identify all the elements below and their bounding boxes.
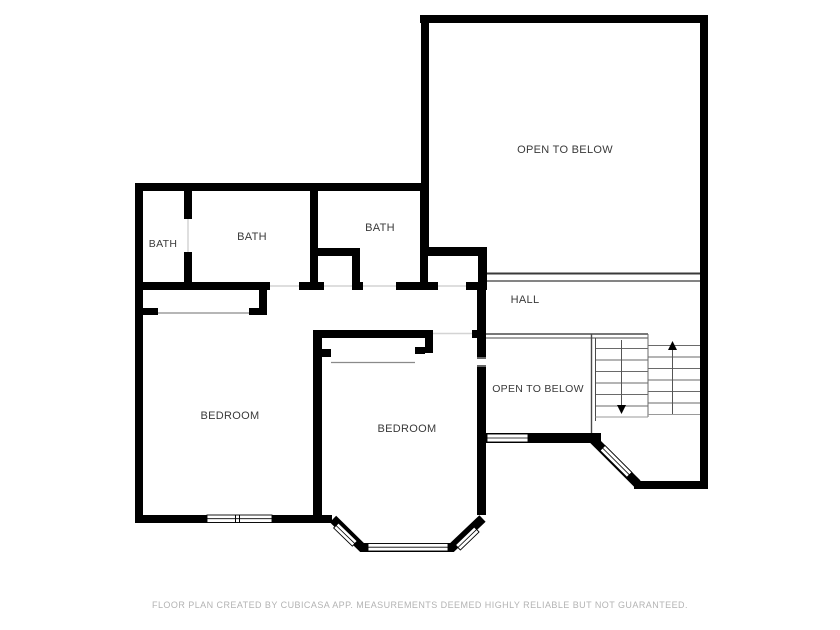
room-label-bath-hall: BATH <box>365 222 395 234</box>
window-line <box>603 448 630 475</box>
interior-walls <box>135 191 641 516</box>
floor-plan-drawing <box>0 0 840 630</box>
wall-closet-left-foot <box>249 308 259 315</box>
wall-closet-left-stub <box>135 308 158 315</box>
wall-bedroom-right-top-2 <box>472 330 482 338</box>
floor-plan-canvas: BATH BATH BATH HALL OPEN TO BELOW OPEN T… <box>0 0 840 630</box>
door-thresholds <box>188 219 472 334</box>
window-bedroom-right-east <box>477 358 486 366</box>
window-diagonal-lower-right <box>600 446 632 478</box>
wall-closet-right-stub <box>322 349 331 357</box>
wall-bedroom-divider <box>313 330 322 516</box>
wall-bedroom-right-east-upper <box>477 288 486 357</box>
wall-top-left-section <box>135 183 429 191</box>
room-label-open-to-below-small: OPEN TO BELOW <box>492 383 584 395</box>
footer-disclaimer: FLOOR PLAN CREATED BY CUBICASA APP. MEAS… <box>0 600 840 610</box>
wall-bath2-bath3-divider <box>310 191 318 282</box>
room-label-bedroom-right: BEDROOM <box>378 423 437 435</box>
stair-flight-up <box>648 346 700 415</box>
stairs <box>596 334 701 417</box>
wall-bath-divider-lower <box>184 252 192 283</box>
wall-nook-top <box>421 247 487 256</box>
room-label-hall: HALL <box>511 294 540 306</box>
wall-hall-top-3 <box>352 282 363 290</box>
wall-bath-divider-upper <box>184 191 192 219</box>
wall-bedroom-right-top <box>313 330 433 338</box>
window-bedroom-left <box>207 515 272 523</box>
wall-outer-left <box>135 183 143 523</box>
stair-flight-down <box>596 334 649 417</box>
wall-bath3-nook-side <box>352 256 360 282</box>
bay-window <box>333 519 483 552</box>
wall-hall-top-4 <box>396 282 438 290</box>
room-label-bath-main: BATH <box>237 231 267 243</box>
wall-hall-top-2 <box>299 282 324 290</box>
room-label-open-to-below-large: OPEN TO BELOW <box>517 144 613 156</box>
bay-window-bottom-pane <box>368 544 448 552</box>
room-label-bath-small: BATH <box>149 238 177 250</box>
window-open-below-small <box>487 434 528 442</box>
wall-bath3-nook-top <box>318 248 360 256</box>
wall-outer-right <box>700 15 708 489</box>
wall-closet-left-side <box>259 282 267 315</box>
wall-hall-top-1 <box>135 282 270 290</box>
railing-open-to-below <box>487 274 700 282</box>
down-arrow-icon <box>617 405 626 414</box>
room-label-bedroom-left: BEDROOM <box>201 410 260 422</box>
wall-closet-right-side <box>425 338 433 353</box>
wall-bath3-right <box>420 191 428 282</box>
wall-nook-right <box>478 247 487 288</box>
wall-bottom-right <box>634 481 708 489</box>
wall-closet-right-foot <box>415 347 425 354</box>
wall-top-right-section <box>420 15 708 23</box>
